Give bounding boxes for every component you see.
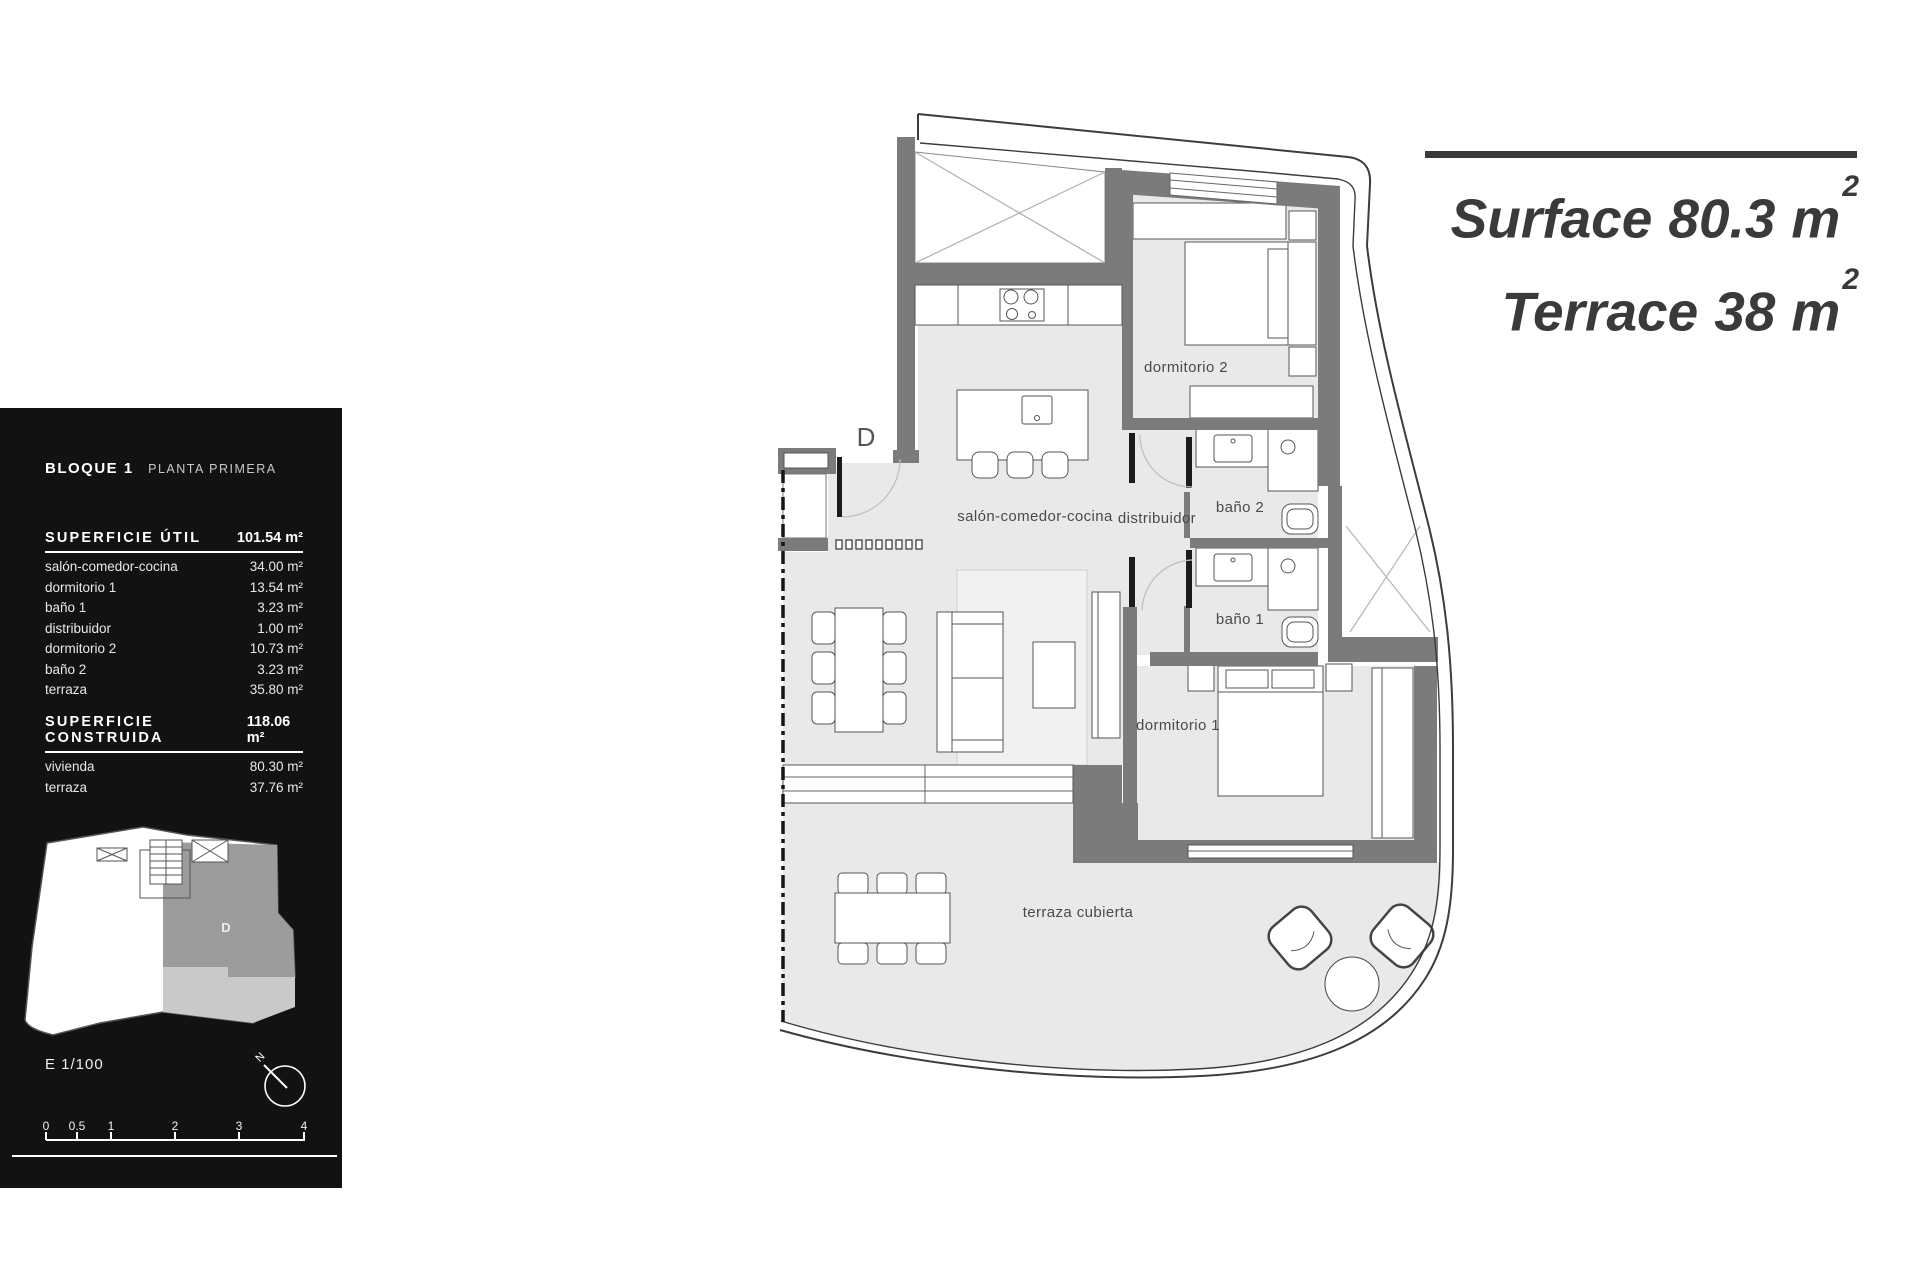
pillow bbox=[1226, 670, 1268, 688]
coffee-table bbox=[1033, 642, 1075, 708]
shower bbox=[1268, 429, 1318, 491]
title-rule bbox=[1425, 151, 1857, 158]
label-salon: salón-comedor-cocina bbox=[957, 508, 1113, 525]
stool bbox=[1042, 452, 1068, 478]
table-row: dormitorio 210.73 m² bbox=[45, 639, 303, 660]
pillow bbox=[1272, 670, 1314, 688]
living-glass-door bbox=[783, 765, 1073, 803]
stool bbox=[1007, 452, 1033, 478]
outdoor-chair bbox=[916, 873, 946, 894]
surface-label: Surface bbox=[1451, 187, 1653, 249]
bath1-door-leaf bbox=[1186, 550, 1192, 608]
keyplan-unit-d bbox=[163, 842, 295, 977]
scale-tick-label: 3 bbox=[236, 1119, 243, 1133]
shower-drain bbox=[1281, 559, 1295, 573]
kitchen-counter bbox=[915, 285, 1122, 325]
scale-tick-label: 0 bbox=[43, 1119, 50, 1133]
block-subtitle: PLANTA PRIMERA bbox=[148, 462, 276, 476]
scale-tick bbox=[303, 1132, 305, 1140]
shower bbox=[1268, 548, 1318, 610]
outdoor-chair bbox=[838, 873, 868, 894]
scale-tick-label: 0.5 bbox=[69, 1119, 86, 1133]
table-row: distribuidor1.00 m² bbox=[45, 619, 303, 640]
service-x-area bbox=[1342, 520, 1438, 637]
north-compass-icon: N bbox=[251, 1050, 315, 1114]
surface-line: Surface80.3m2 bbox=[1217, 176, 1857, 251]
outdoor-chair bbox=[877, 943, 907, 964]
info-sidebar: BLOQUE 1 PLANTA PRIMERA SUPERFICIE ÚTIL … bbox=[0, 408, 342, 1188]
keyplan-map: D bbox=[0, 822, 342, 1062]
block-header: BLOQUE 1 PLANTA PRIMERA bbox=[45, 460, 277, 478]
divider-squares bbox=[836, 540, 922, 549]
table-header: SUPERFICIE CONSTRUIDA 118.06 m² bbox=[45, 714, 303, 753]
scale-label: E 1/100 bbox=[45, 1056, 104, 1073]
elevator-shaft bbox=[915, 152, 1105, 263]
kitchen-island bbox=[957, 390, 1088, 478]
table-row: terraza37.76 m² bbox=[45, 778, 303, 799]
outdoor-chair bbox=[877, 873, 907, 894]
dining-chair bbox=[812, 612, 835, 644]
toilet-seat bbox=[1287, 509, 1313, 529]
dining-chair bbox=[812, 652, 835, 684]
surface-unit: m bbox=[1791, 187, 1840, 249]
scale-tick-label: 1 bbox=[108, 1119, 115, 1133]
sidebar-separator-line bbox=[12, 1155, 337, 1157]
terrace-unit-sup: 2 bbox=[1842, 263, 1859, 296]
table-row: terraza35.80 m² bbox=[45, 680, 303, 701]
table-title: SUPERFICIE ÚTIL bbox=[45, 530, 201, 546]
scale-tick bbox=[174, 1132, 176, 1140]
terrace-unit: m bbox=[1791, 281, 1840, 343]
bedroom1-window bbox=[1188, 845, 1353, 858]
storage-room bbox=[783, 453, 828, 538]
block-title: BLOQUE 1 bbox=[45, 460, 134, 477]
faucet bbox=[1231, 558, 1235, 562]
table-row: vivienda80.30 m² bbox=[45, 757, 303, 778]
label-bano1: baño 1 bbox=[1216, 611, 1264, 628]
scale-tick bbox=[76, 1132, 78, 1140]
scale-tick bbox=[110, 1132, 112, 1140]
superficie-construida-table: SUPERFICIE CONSTRUIDA 118.06 m² vivienda… bbox=[45, 714, 303, 798]
dining-chair bbox=[812, 692, 835, 724]
svg-text:N: N bbox=[253, 1051, 267, 1065]
stove bbox=[1000, 289, 1044, 321]
table-row: dormitorio 113.54 m² bbox=[45, 578, 303, 599]
floorplan-page: D salón-comedor-cocina distribuidor baño… bbox=[0, 0, 1920, 1280]
dining-table bbox=[835, 608, 883, 732]
toilet-seat bbox=[1287, 622, 1313, 642]
stool bbox=[972, 452, 998, 478]
outdoor-chair bbox=[838, 943, 868, 964]
table-total: 101.54 m² bbox=[237, 530, 303, 546]
bath2-door-leaf bbox=[1186, 437, 1192, 488]
outdoor-table bbox=[835, 893, 950, 943]
table-total: 118.06 m² bbox=[247, 714, 303, 746]
label-bano2: baño 2 bbox=[1216, 499, 1264, 516]
wardrobe bbox=[1372, 668, 1413, 838]
table-row: salón-comedor-cocina34.00 m² bbox=[45, 557, 303, 578]
entry-door-leaf bbox=[837, 457, 842, 517]
shower-drain bbox=[1281, 440, 1295, 454]
label-dormitorio1: dormitorio 1 bbox=[1136, 717, 1220, 734]
faucet bbox=[1231, 439, 1235, 443]
outdoor-chair bbox=[916, 943, 946, 964]
label-dormitorio2: dormitorio 2 bbox=[1144, 359, 1228, 376]
scale-tick bbox=[238, 1132, 240, 1140]
hall-floor bbox=[1128, 430, 1190, 655]
bed bbox=[1218, 692, 1323, 796]
island-faucet bbox=[1035, 416, 1040, 421]
table-title: SUPERFICIE CONSTRUIDA bbox=[45, 714, 247, 746]
tv-unit bbox=[1092, 592, 1120, 738]
sliding-door-panel bbox=[1129, 557, 1135, 607]
dresser bbox=[1190, 386, 1313, 418]
scale-tick-label: 4 bbox=[301, 1119, 308, 1133]
terrace-line: Terrace38m2 bbox=[1217, 269, 1857, 344]
dining-chair bbox=[883, 612, 906, 644]
label-distribuidor: distribuidor bbox=[1118, 510, 1196, 527]
round-side-table bbox=[1325, 957, 1379, 1011]
surface-value: 80.3 bbox=[1668, 187, 1775, 249]
label-terraza: terraza cubierta bbox=[1023, 904, 1134, 921]
dining-chair bbox=[883, 652, 906, 684]
table-header: SUPERFICIE ÚTIL 101.54 m² bbox=[45, 530, 303, 553]
nightstand bbox=[1289, 347, 1316, 376]
table-row: baño 23.23 m² bbox=[45, 660, 303, 681]
unit-label: D bbox=[857, 422, 876, 452]
dining-set bbox=[812, 608, 906, 732]
nightstand bbox=[1188, 664, 1214, 691]
dining-chair bbox=[883, 692, 906, 724]
terrace-value: 38 bbox=[1714, 281, 1775, 343]
scale-tick bbox=[45, 1132, 47, 1140]
superficie-util-table: SUPERFICIE ÚTIL 101.54 m² salón-comedor-… bbox=[45, 530, 303, 701]
surface-unit-sup: 2 bbox=[1842, 170, 1859, 203]
scale-tick-label: 2 bbox=[172, 1119, 179, 1133]
terrace-label: Terrace bbox=[1502, 281, 1699, 343]
sliding-door-panel bbox=[1129, 433, 1135, 483]
keyplan-unit-label: D bbox=[221, 920, 230, 935]
surface-summary: Surface80.3m2 Terrace38m2 bbox=[1217, 151, 1857, 345]
nightstand bbox=[1326, 664, 1352, 691]
table-row: baño 13.23 m² bbox=[45, 598, 303, 619]
sofa bbox=[937, 612, 1003, 752]
